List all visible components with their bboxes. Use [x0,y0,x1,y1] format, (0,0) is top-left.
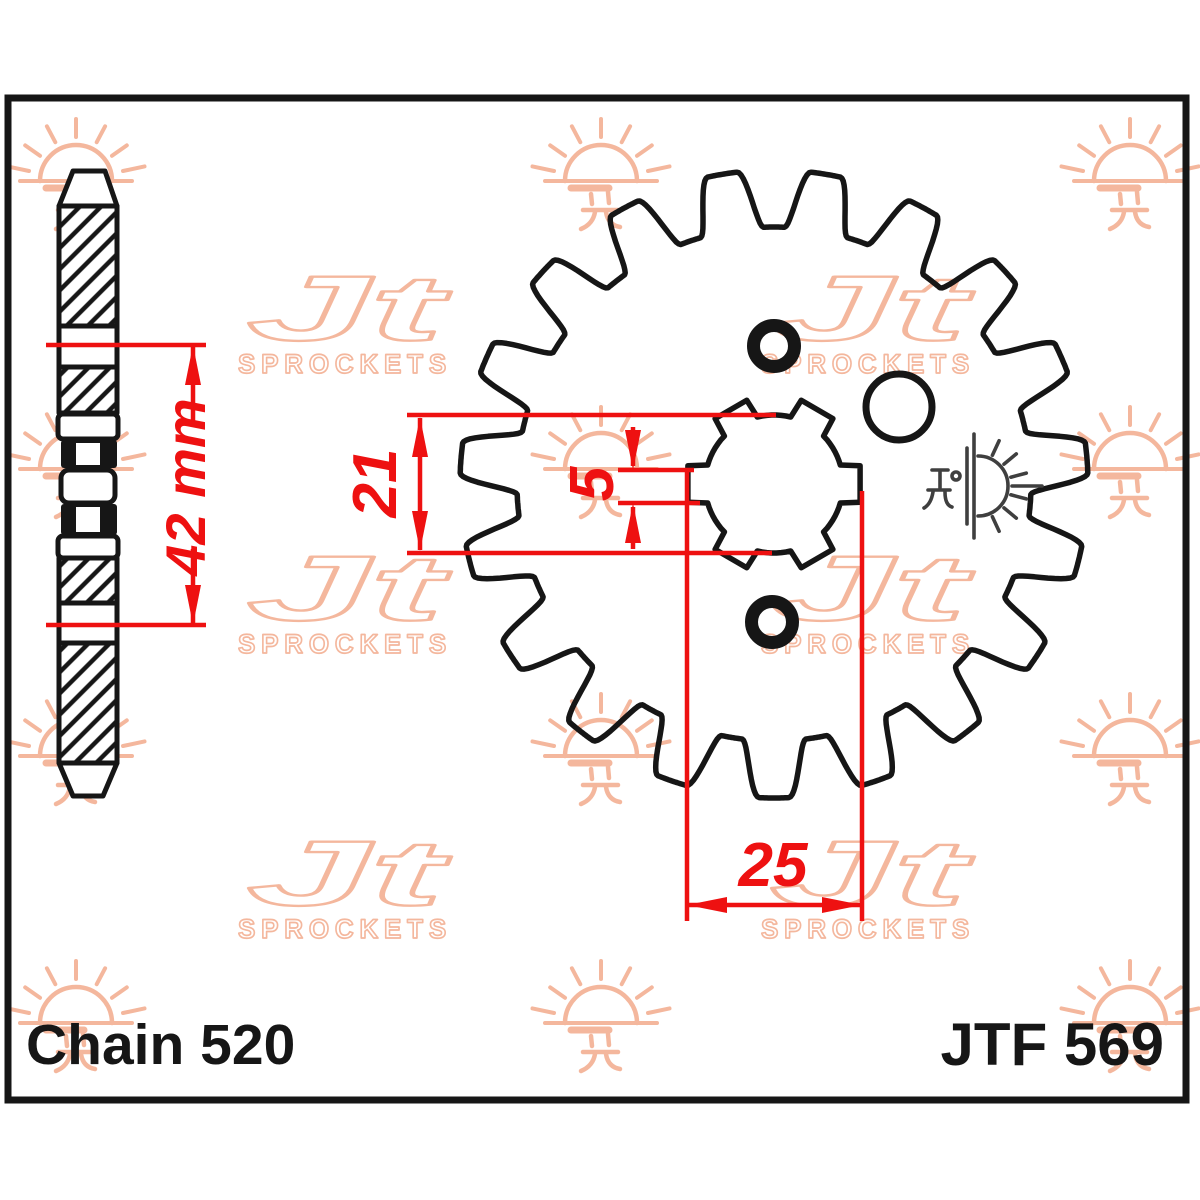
jt-sprockets-watermark: JtSPROCKETS [238,538,452,659]
side-hatched-section [59,206,117,326]
sprockets-watermark-text: SPROCKETS [761,914,975,944]
jt-sprockets-watermark: JtSPROCKETS [238,823,452,944]
jt-stamp-icon [924,434,1042,538]
side-hub-band [61,470,115,503]
sun-watermark-icon [533,961,670,1071]
side-collar-band [58,536,118,558]
jt-kanji-glyph [1110,767,1149,804]
side-spline-window [74,441,102,467]
sprocket-side-view [58,171,118,796]
jt-kanji-glyph [581,767,620,804]
side-collar-band [58,414,118,439]
side-hatched-section [59,367,117,413]
jt-kanji-glyph [1110,480,1149,517]
side-spline-window [74,505,102,534]
sprockets-watermark-text: SPROCKETS [238,629,452,659]
dimension-21-label: 21 [344,422,406,544]
jt-sprockets-watermark: JtSPROCKETS [238,258,452,379]
sprockets-watermark-text: SPROCKETS [238,914,452,944]
chain-size-label: Chain 520 [26,1012,295,1078]
dimension-arrowhead [687,897,727,913]
part-number-label: JTF 569 [908,1010,1164,1079]
side-hatched-section [59,643,117,763]
jt-brand-letters: Jt [770,538,974,640]
jt-kanji-glyph [581,1034,620,1071]
dimension-arrowhead [625,503,641,543]
sun-watermark-icon [1062,694,1199,804]
frame-border [8,98,1186,1100]
dimension-arrowhead [412,417,428,457]
sun-watermark-icon [1062,119,1199,229]
jt-kanji-glyph [581,192,620,229]
plain-hole [866,374,932,440]
dimension-25-label: 25 [712,834,834,896]
side-top-cap [59,171,117,206]
side-hatched-section [59,558,117,604]
jt-brand-letters: Jt [247,823,451,925]
catalog-drawing: JtSPROCKETSJtSPROCKETSJtSPROCKETSJtSPROC… [0,0,1200,1200]
jt-kanji-glyph [1110,192,1149,229]
dimension-5-label: 5 [561,452,623,516]
dimension-42mm-label: 42 mm [155,376,215,598]
sprockets-watermark-text: SPROCKETS [238,349,452,379]
sun-watermark-icon [1062,407,1199,517]
jt-brand-letters: Jt [247,258,451,360]
